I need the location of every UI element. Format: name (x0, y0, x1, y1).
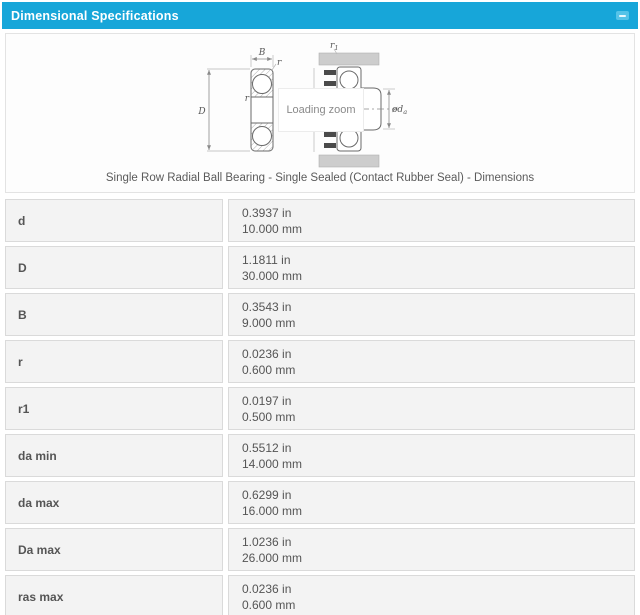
row-label-cell: r1 (5, 387, 223, 430)
loading-zoom-text: Loading zoom (286, 104, 355, 116)
row-label-cell: B (5, 293, 223, 336)
value-inch: 0.0236 in (242, 346, 634, 362)
row-label-cell: da max (5, 481, 223, 524)
value-mm: 0.500 mm (242, 409, 634, 425)
row-value-cell: 0.0236 in 0.600 mm (228, 575, 635, 615)
row-label-cell: Da max (5, 528, 223, 571)
value-inch: 0.6299 in (242, 487, 634, 503)
dim-label-r-inner: r (245, 94, 250, 104)
table-row: D 1.1811 in 30.000 mm (5, 246, 635, 289)
row-value-cell: 1.0236 in 26.000 mm (228, 528, 635, 571)
row-value-cell: 0.3937 in 10.000 mm (228, 199, 635, 242)
dim-label-r-corner: r (277, 58, 282, 68)
row-value-cell: 0.5512 in 14.000 mm (228, 434, 635, 477)
value-mm: 30.000 mm (242, 268, 634, 284)
value-mm: 9.000 mm (242, 315, 634, 331)
value-mm: 0.600 mm (242, 362, 634, 378)
panel-header: Dimensional Specifications (2, 2, 638, 29)
value-inch: 0.3543 in (242, 299, 634, 315)
dim-label-r1: r1 (330, 41, 338, 52)
value-inch: 0.0197 in (242, 393, 634, 409)
row-label-cell: r (5, 340, 223, 383)
value-inch: 1.0236 in (242, 534, 634, 550)
value-mm: 26.000 mm (242, 550, 634, 566)
value-mm: 14.000 mm (242, 456, 634, 472)
dim-label-B: B (258, 48, 266, 58)
row-value-cell: 0.6299 in 16.000 mm (228, 481, 635, 524)
dim-label-D: D (197, 107, 205, 117)
dimensions-table: d 0.3937 in 10.000 mm D 1.1811 in 30.000… (5, 199, 635, 615)
table-row: da min 0.5512 in 14.000 mm (5, 434, 635, 477)
row-label-cell: da min (5, 434, 223, 477)
value-mm: 10.000 mm (242, 221, 634, 237)
figure-image[interactable]: D B r r (5, 33, 635, 193)
value-inch: 0.3937 in (242, 205, 634, 221)
row-value-cell: 0.3543 in 9.000 mm (228, 293, 635, 336)
table-row: B 0.3543 in 9.000 mm (5, 293, 635, 336)
value-inch: 1.1811 in (242, 252, 634, 268)
value-mm: 0.600 mm (242, 597, 634, 613)
row-label-cell: D (5, 246, 223, 289)
table-row: da max 0.6299 in 16.000 mm (5, 481, 635, 524)
collapse-minus-icon[interactable] (616, 11, 629, 20)
value-inch: 0.0236 in (242, 581, 634, 597)
table-row: d 0.3937 in 10.000 mm (5, 199, 635, 242)
spec-panel: Dimensional Specifications D (0, 0, 640, 615)
row-value-cell: 1.1811 in 30.000 mm (228, 246, 635, 289)
row-value-cell: 0.0236 in 0.600 mm (228, 340, 635, 383)
table-row: r 0.0236 in 0.600 mm (5, 340, 635, 383)
value-mm: 16.000 mm (242, 503, 634, 519)
zoom-loading-placeholder: Loading zoom (278, 88, 364, 132)
panel-title: Dimensional Specifications (11, 9, 179, 23)
figure-caption: Single Row Radial Ball Bearing - Single … (6, 172, 634, 184)
value-inch: 0.5512 in (242, 440, 634, 456)
dim-label-da: øda (391, 105, 407, 116)
row-value-cell: 0.0197 in 0.500 mm (228, 387, 635, 430)
row-label-cell: d (5, 199, 223, 242)
table-row: ras max 0.0236 in 0.600 mm (5, 575, 635, 615)
row-label-cell: ras max (5, 575, 223, 615)
front-section-view: D B r r (197, 48, 282, 151)
table-row: r1 0.0197 in 0.500 mm (5, 387, 635, 430)
table-row: Da max 1.0236 in 26.000 mm (5, 528, 635, 571)
